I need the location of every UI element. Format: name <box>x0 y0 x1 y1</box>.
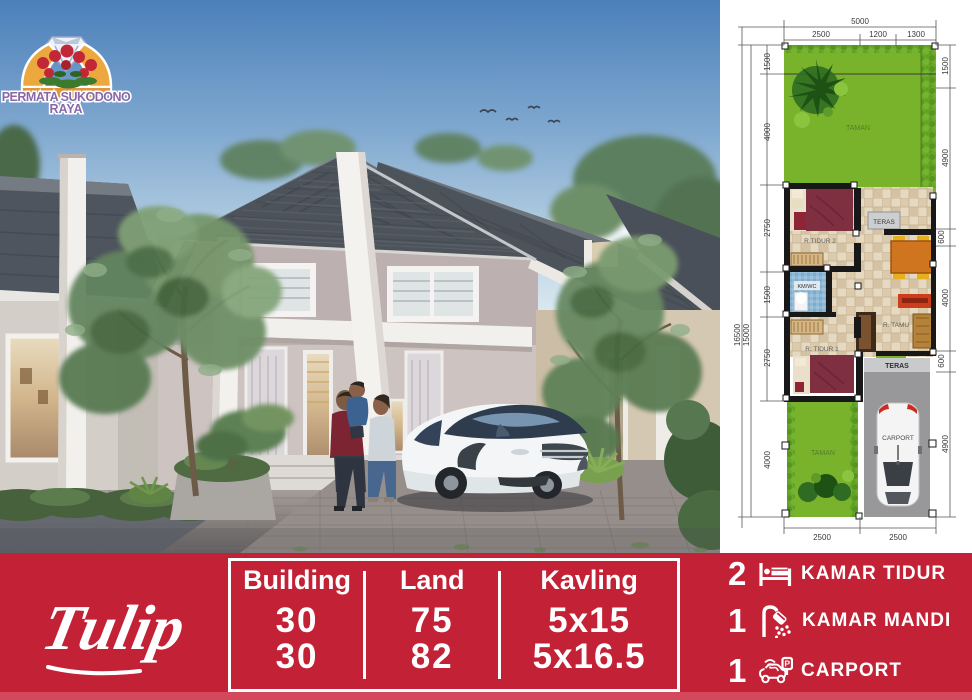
svg-text:1500: 1500 <box>763 286 772 304</box>
svg-text:1300: 1300 <box>907 30 925 39</box>
svg-text:2750: 2750 <box>763 219 772 237</box>
svg-text:RAYA: RAYA <box>49 102 82 116</box>
svg-text:TAMAN: TAMAN <box>846 125 870 132</box>
svg-text:2750: 2750 <box>763 349 772 367</box>
svg-text:5000: 5000 <box>851 17 869 26</box>
svg-text:1500: 1500 <box>763 53 772 71</box>
svg-text:2500: 2500 <box>812 30 830 39</box>
svg-text:Tulip: Tulip <box>36 592 191 663</box>
svg-text:600: 600 <box>937 230 946 244</box>
svg-text:KM/WC: KM/WC <box>798 284 817 290</box>
svg-text:4000: 4000 <box>763 123 772 141</box>
svg-text:4900: 4900 <box>941 149 950 167</box>
svg-text:R. TIDUR 1: R. TIDUR 1 <box>805 346 839 353</box>
svg-text:16500: 16500 <box>733 323 742 346</box>
svg-text:R.TIDUR 2: R.TIDUR 2 <box>804 238 836 245</box>
svg-text:TAMAN: TAMAN <box>811 450 835 457</box>
svg-text:CARPORT: CARPORT <box>882 435 914 442</box>
svg-text:P: P <box>784 658 790 668</box>
svg-text:R. TAMU: R. TAMU <box>883 322 909 329</box>
svg-text:1500: 1500 <box>941 57 950 75</box>
svg-text:1200: 1200 <box>869 30 887 39</box>
svg-text:4000: 4000 <box>763 451 772 469</box>
svg-text:TERAS: TERAS <box>873 219 895 226</box>
svg-text:2500: 2500 <box>813 533 831 542</box>
svg-text:15000: 15000 <box>742 323 751 346</box>
svg-text:2500: 2500 <box>889 533 907 542</box>
svg-text:600: 600 <box>937 354 946 368</box>
svg-text:4900: 4900 <box>941 435 950 453</box>
svg-text:4000: 4000 <box>941 289 950 307</box>
svg-text:TERAS: TERAS <box>885 363 909 370</box>
